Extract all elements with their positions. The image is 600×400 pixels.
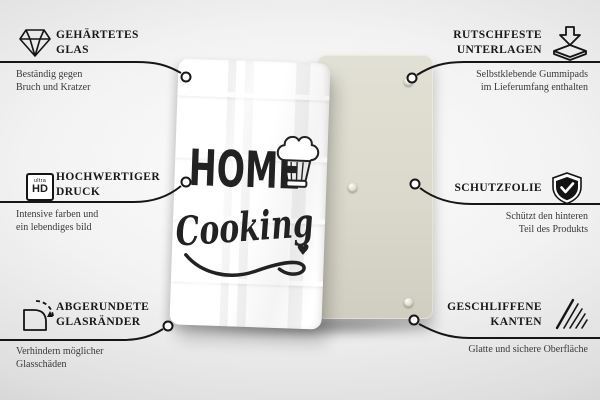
callout-title: GEHÄRTETES <box>56 28 139 43</box>
rounded-corner-icon <box>20 300 54 332</box>
callout-title: RUTSCHFESTE <box>382 28 542 43</box>
diamond-icon <box>18 28 52 58</box>
callout-title: KANTEN <box>382 315 542 330</box>
product-infographic: { "product": { "text_top": "HOME", "text… <box>0 0 600 400</box>
callout-description: Selbstklebende Gummipads im Lieferumfang… <box>398 68 588 94</box>
callout-title: GLASRÄNDER <box>56 315 149 330</box>
callout-non-slip-pads: RUTSCHFESTE UNTERLAGEN <box>382 28 542 58</box>
rubber-pad <box>348 183 357 192</box>
shield-check-icon <box>551 172 583 204</box>
non-slip-pads-icon <box>552 26 588 62</box>
print-text-cooking: Cooking <box>174 199 315 256</box>
flourish-swash <box>185 255 304 278</box>
polished-edges-icon <box>554 298 588 330</box>
callout-protective-film: SCHUTZFOLIE <box>382 181 542 196</box>
heart-icon: ♥ <box>296 241 310 259</box>
callout-title: SCHUTZFOLIE <box>382 181 542 196</box>
callout-description: Beständig gegen Bruch und Kratzer <box>16 68 166 94</box>
callout-description: Glatte und sichere Oberfläche <box>388 343 588 356</box>
callout-tempered-glass: GEHÄRTETES GLAS <box>56 28 139 58</box>
callout-rounded-edges: ABGERUNDETE GLASRÄNDER <box>56 300 149 330</box>
front-board: HOME Cooking ♥ <box>169 58 330 329</box>
callout-title: DRUCK <box>56 185 160 200</box>
callout-description: Intensive farben und ein lebendiges bild <box>16 208 166 234</box>
callout-description: Schützt den hinteren Teil des Produkts <box>398 210 588 236</box>
callout-high-quality-print: HOCHWERTIGER DRUCK <box>56 170 160 200</box>
callout-title: GESCHLIFFENE <box>382 300 542 315</box>
callout-description: Verhindern möglicher Glasschäden <box>16 345 176 371</box>
callout-polished-edges: GESCHLIFFENE KANTEN <box>382 300 542 330</box>
home-cooking-print: HOME Cooking ♥ <box>169 58 330 329</box>
callout-title: HOCHWERTIGER <box>56 170 160 185</box>
ultra-hd-icon: ultra HD <box>26 173 54 201</box>
callout-title: GLAS <box>56 43 139 58</box>
callout-title: UNTERLAGEN <box>382 43 542 58</box>
callout-title: ABGERUNDETE <box>56 300 149 315</box>
